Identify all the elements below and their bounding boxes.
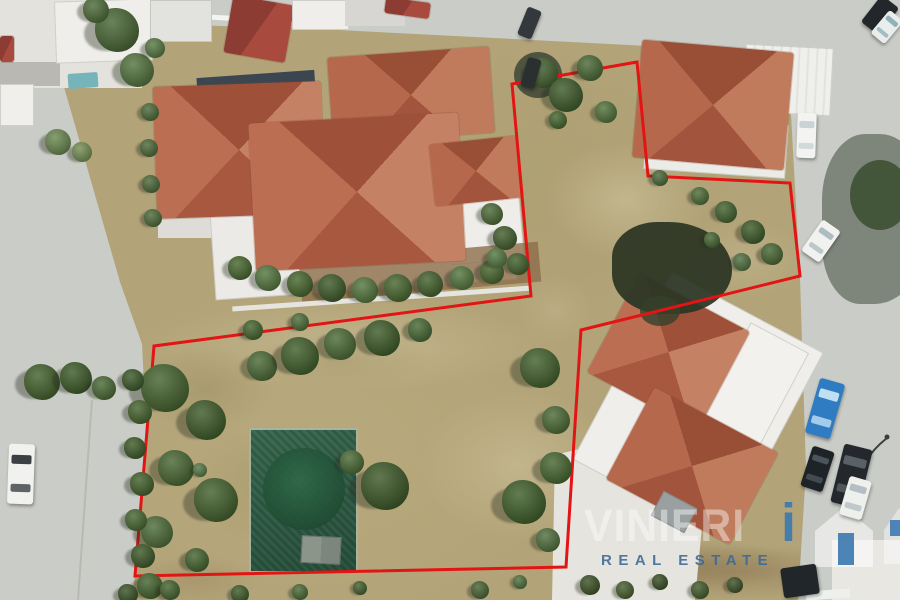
- tree-shadow: [590, 105, 612, 123]
- tree: [291, 313, 309, 331]
- tree: [160, 580, 180, 600]
- tree: [493, 226, 517, 250]
- tree: [595, 101, 617, 123]
- tree: [691, 187, 709, 205]
- tree-shadow: [117, 373, 139, 391]
- tree: [536, 528, 560, 552]
- tree-shadow: [350, 583, 364, 594]
- tree: [247, 351, 277, 381]
- tree: [384, 274, 412, 302]
- tree-shadow: [155, 584, 175, 600]
- tree: [417, 271, 443, 297]
- tree-shadow: [474, 264, 498, 283]
- car-rear-window: [844, 502, 862, 512]
- tree: [92, 376, 116, 400]
- tree-shadow: [377, 279, 405, 301]
- tree: [364, 320, 400, 356]
- tree: [318, 274, 346, 302]
- tree: [704, 232, 720, 248]
- tree-shadow: [240, 356, 270, 380]
- tree-shadow: [729, 256, 747, 270]
- tree: [24, 364, 60, 400]
- tree-shadow: [571, 60, 597, 81]
- tree: [122, 369, 144, 391]
- tree-shadow: [535, 411, 563, 433]
- car-rear-window: [805, 473, 823, 484]
- tree: [186, 400, 226, 440]
- car-windshield: [818, 388, 839, 402]
- tree-shadow: [179, 552, 203, 571]
- tree: [128, 400, 152, 424]
- tree: [137, 573, 163, 599]
- tree-shadow: [648, 173, 664, 186]
- tree: [340, 450, 364, 474]
- tree-shadow: [502, 257, 524, 275]
- tree-shadow: [124, 476, 148, 495]
- tree: [352, 277, 378, 303]
- tree-shadow: [288, 587, 304, 600]
- tree: [142, 175, 160, 193]
- tree-shadow: [334, 454, 358, 473]
- tree: [60, 362, 92, 394]
- tree-shadow: [575, 579, 595, 595]
- tree-shadow: [67, 146, 87, 162]
- tree-shadow: [287, 316, 305, 330]
- car-windshield: [849, 483, 868, 494]
- tree: [292, 584, 308, 600]
- car-windshield: [800, 121, 815, 129]
- tree-shadow: [190, 465, 204, 476]
- tree: [193, 463, 207, 477]
- tree-shadow: [129, 372, 177, 410]
- tree: [502, 480, 546, 524]
- tree-shadow: [137, 106, 155, 120]
- tree-shadow: [491, 488, 535, 523]
- tree-shadow: [735, 224, 759, 243]
- tree-shadow: [700, 235, 716, 248]
- tree: [281, 337, 319, 375]
- parked-car: [801, 219, 841, 263]
- tree: [652, 574, 668, 590]
- tree: [580, 575, 600, 595]
- tree: [255, 265, 281, 291]
- parked-car: [7, 444, 35, 505]
- tree: [131, 544, 155, 568]
- tree-shadow: [138, 178, 156, 192]
- tree-shadow: [120, 513, 142, 531]
- tree: [141, 364, 189, 412]
- tree-shadow: [112, 59, 146, 86]
- tree-layer: [0, 0, 900, 600]
- tree-shadow: [140, 42, 160, 58]
- parked-car: [805, 378, 846, 440]
- tree: [353, 581, 367, 595]
- tree-shadow: [710, 205, 732, 223]
- tree: [616, 581, 634, 599]
- tree-shadow: [476, 207, 498, 225]
- tree-shadow: [612, 584, 630, 598]
- tree: [243, 320, 263, 340]
- tree: [549, 111, 567, 129]
- tree-shadow: [15, 370, 51, 399]
- tree: [480, 260, 504, 284]
- tree: [741, 220, 765, 244]
- car-rear-window: [876, 26, 889, 38]
- car-windshield: [843, 455, 867, 470]
- tree-shadow: [249, 270, 275, 291]
- parked-car: [796, 113, 817, 159]
- tree-shadow: [238, 324, 258, 340]
- tree: [471, 581, 489, 599]
- tree: [125, 509, 147, 531]
- tree-shadow: [136, 142, 154, 156]
- tree: [652, 170, 668, 186]
- car-windshield: [818, 226, 835, 241]
- tree: [118, 584, 138, 600]
- tree: [540, 452, 572, 484]
- tree-shadow: [411, 276, 437, 297]
- tree: [542, 406, 570, 434]
- tree-shadow: [125, 548, 149, 567]
- aerial-photo: VINIERI i REAL ESTATE: [0, 0, 900, 600]
- tree-shadow: [532, 458, 564, 484]
- tree: [83, 0, 109, 23]
- tree: [361, 462, 409, 510]
- tree-shadow: [541, 84, 575, 111]
- tree: [158, 450, 194, 486]
- tree-shadow: [119, 441, 141, 459]
- tree-shadow: [349, 470, 397, 508]
- tree-shadow: [84, 16, 128, 51]
- tree-shadow: [39, 134, 65, 155]
- tree-shadow: [545, 114, 563, 128]
- tree: [287, 271, 313, 297]
- tree: [141, 103, 159, 121]
- tree-shadow: [52, 368, 84, 394]
- tree-shadow: [687, 584, 705, 598]
- tree-shadow: [176, 407, 216, 439]
- tree: [549, 78, 583, 112]
- car-windshield: [11, 454, 31, 464]
- tree: [95, 8, 139, 52]
- tree-shadow: [402, 322, 426, 341]
- tree: [144, 209, 162, 227]
- tree: [124, 437, 146, 459]
- tree-shadow: [510, 355, 550, 387]
- car-windshield: [885, 15, 899, 27]
- tree: [520, 348, 560, 388]
- tree-shadow: [355, 326, 391, 355]
- tree-shadow: [272, 344, 310, 374]
- car-rear-window: [10, 483, 30, 492]
- tree: [194, 478, 238, 522]
- tree: [140, 139, 158, 157]
- tree-shadow: [687, 190, 705, 204]
- tree: [130, 472, 154, 496]
- tree-shadow: [113, 588, 133, 600]
- tree: [513, 575, 527, 589]
- car-windshield: [811, 454, 830, 466]
- tree: [145, 38, 165, 58]
- tree: [487, 248, 507, 268]
- tree-shadow: [149, 456, 185, 485]
- tree: [185, 548, 209, 572]
- tree-shadow: [281, 276, 307, 297]
- tree: [324, 328, 356, 360]
- tree-shadow: [77, 2, 103, 23]
- tree: [691, 581, 709, 599]
- parked-car: [517, 6, 542, 39]
- tree: [72, 142, 92, 162]
- tree-shadow: [756, 247, 778, 265]
- tree-shadow: [510, 577, 524, 588]
- tree-shadow: [316, 334, 348, 360]
- tree-shadow: [86, 380, 110, 399]
- tree-shadow: [131, 578, 157, 599]
- tree-shadow: [444, 270, 468, 289]
- tree-shadow: [311, 279, 339, 301]
- tree: [715, 201, 737, 223]
- tree-shadow: [487, 230, 511, 249]
- tree: [733, 253, 751, 271]
- tree-shadow: [140, 212, 158, 226]
- tree-shadow: [227, 588, 245, 600]
- tree-shadow: [133, 522, 165, 548]
- tree: [408, 318, 432, 342]
- tree-shadow: [346, 282, 372, 303]
- tree: [761, 243, 783, 265]
- tree: [120, 53, 154, 87]
- parked-car: [800, 445, 835, 492]
- tree-shadow: [467, 584, 485, 598]
- car-rear-window: [811, 415, 832, 428]
- tree-shadow: [723, 580, 739, 593]
- tree-shadow: [122, 404, 146, 423]
- tree-shadow: [183, 486, 227, 521]
- car-rear-window: [808, 241, 825, 255]
- tree: [450, 266, 474, 290]
- tree-shadow: [222, 260, 246, 279]
- tree: [481, 203, 503, 225]
- tree-shadow: [482, 252, 502, 268]
- tree: [141, 516, 173, 548]
- tree: [727, 577, 743, 593]
- tree: [45, 129, 71, 155]
- parked-car: [780, 564, 820, 599]
- tree: [231, 585, 249, 600]
- tree: [577, 55, 603, 81]
- tree-shadow: [648, 577, 664, 590]
- tree: [228, 256, 252, 280]
- parked-car: [520, 57, 542, 90]
- tree-shadow: [530, 532, 554, 551]
- tree: [507, 253, 529, 275]
- car-rear-window: [799, 142, 814, 149]
